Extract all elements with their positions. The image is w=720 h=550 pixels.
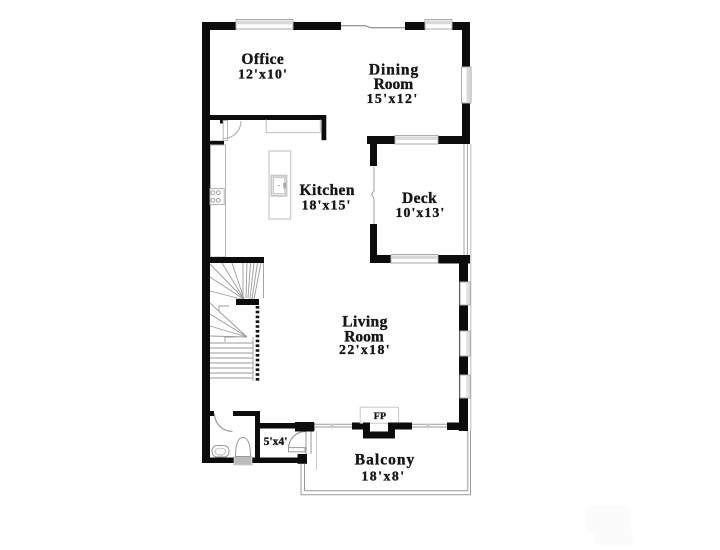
svg-text:15'x12': 15'x12' <box>367 91 419 106</box>
svg-text:10'x13': 10'x13' <box>395 205 445 220</box>
svg-text:22'x18': 22'x18' <box>339 342 391 357</box>
svg-text:18'x8': 18'x8' <box>361 468 405 483</box>
svg-text:18'x15': 18'x15' <box>302 198 352 213</box>
svg-text:Kitchen: Kitchen <box>300 182 355 199</box>
svg-text:FP: FP <box>374 411 387 422</box>
svg-text:5'x4': 5'x4' <box>264 435 288 448</box>
svg-text:Balcony: Balcony <box>355 452 415 469</box>
svg-text:Office: Office <box>241 51 284 68</box>
svg-text:12'x10': 12'x10' <box>238 67 288 82</box>
